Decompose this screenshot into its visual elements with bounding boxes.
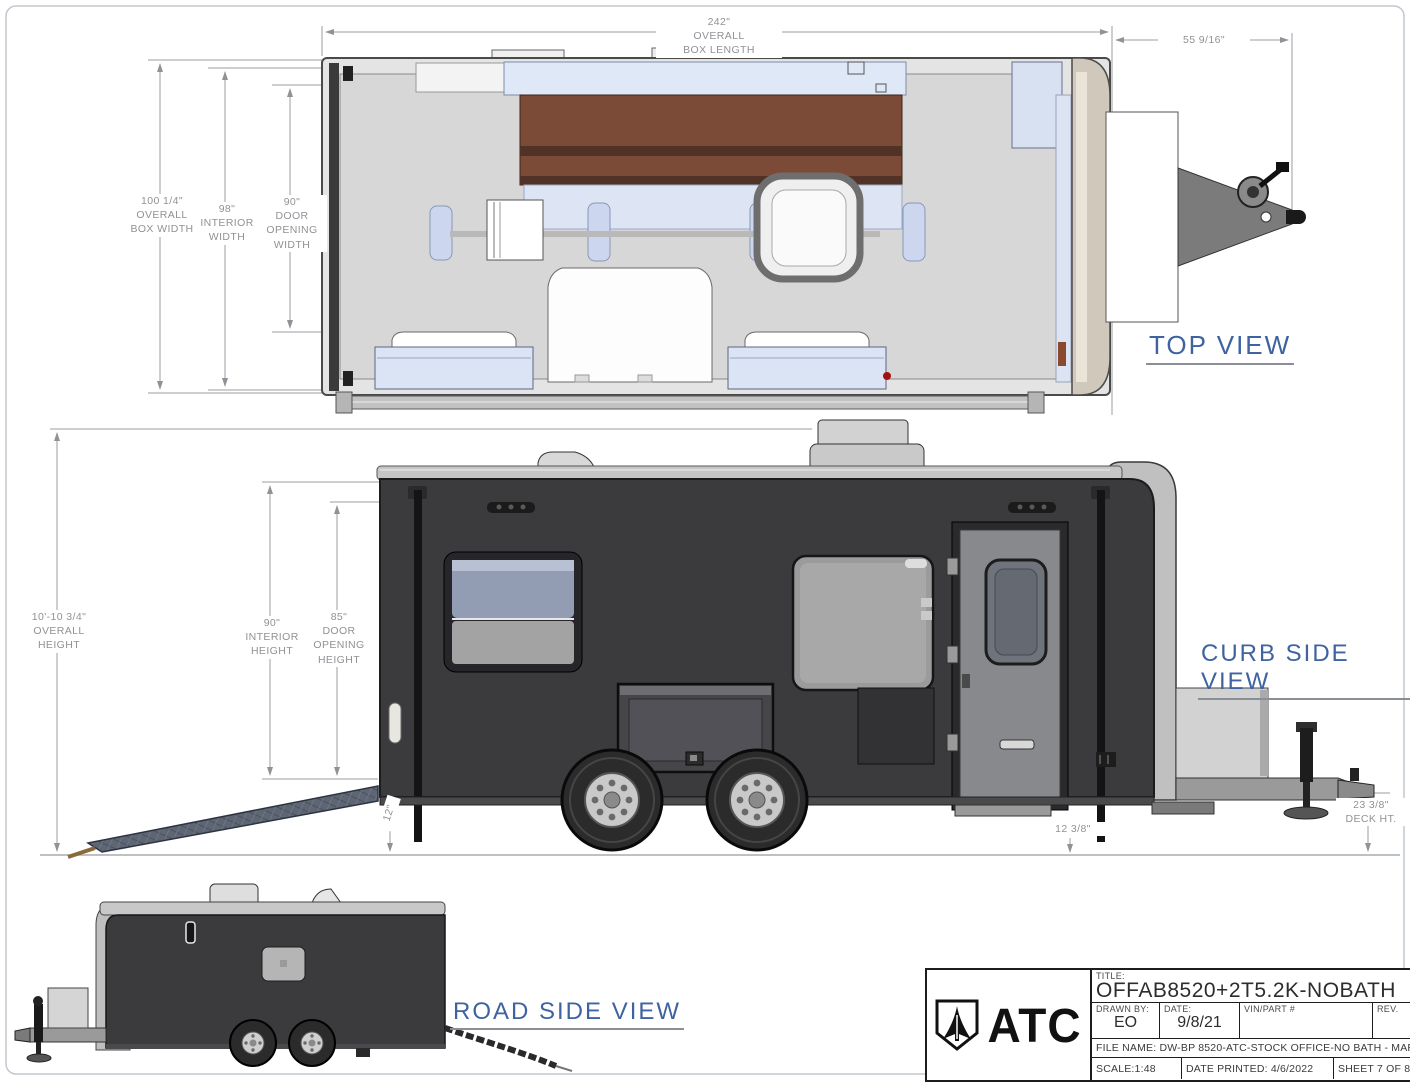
power-inlet [1096,752,1116,767]
awning-arm [1097,490,1105,842]
hinge-detail [343,66,353,81]
dim-interior-height: 90" INTERIOR HEIGHT [238,616,306,659]
atc-shield-icon [935,999,979,1051]
drawing-sheet: TOP VIEW CURB SIDE VIEW ROAD SIDE VIEW 2… [0,0,1410,1080]
ramp-tip [556,1066,572,1071]
title-row: TITLE: OFFAB8520+2T5.2K-NOBATH [1092,970,1410,1003]
title-block: ATC TITLE: OFFAB8520+2T5.2K-NOBATH DRAWN… [925,968,1410,1082]
frame-step [1152,802,1214,814]
wall-vent-slot [186,922,195,943]
wall-window-plan [903,203,925,261]
scale-row: SCALE:1:48 DATE PRINTED: 4/6/2022 SHEET … [1092,1058,1410,1079]
wheel [289,1020,335,1066]
window-glass-lower [452,621,574,664]
wheel [562,750,662,850]
sofa-top-view [520,95,902,185]
door-handle [1000,740,1034,749]
rear-ramp [445,1028,556,1066]
manufacturer-logo: ATC [927,970,1092,1080]
wood-trim-detail [1058,342,1066,366]
scale-value: SCALE:1:48 [1092,1058,1182,1079]
date-label: DATE: [1164,1004,1235,1014]
desk-foot [575,375,589,382]
dim-door-opening-width: 90" DOOR OPENING WIDTH [257,195,327,252]
roof-rail [100,902,445,915]
sheet-number: SHEET 7 OF 8 [1334,1058,1410,1079]
door-hinge [947,646,958,663]
door-lock [962,674,970,688]
tongue-box [48,988,88,1028]
door-window-glass [995,569,1037,655]
jack-foot [27,1054,51,1062]
drawn-by-label: DRAWN BY: [1096,1004,1155,1014]
date-value: 9/8/21 [1164,1014,1235,1032]
coupler-latch [1350,768,1359,781]
wall-window-plan [430,206,452,260]
window-vent-notch [905,559,927,568]
desk-foot [638,375,652,382]
dim-tongue-length: 55 9/16" [1158,33,1250,47]
tongue-box-plan [1106,112,1178,322]
door-hinge [947,558,958,575]
bench-seat [375,347,533,389]
vin-part-cell: VIN/PART # [1240,1003,1373,1038]
date-printed: DATE PRINTED: 4/6/2022 [1182,1058,1334,1079]
coupler-ball-socket [1292,210,1306,224]
curb-side-view-label: CURB SIDE VIEW [1198,640,1410,700]
rev-cell: REV. [1373,1003,1410,1038]
date-cell: DATE: 9/8/21 [1160,1003,1240,1038]
dim-door-opening-height: 85" DOOR OPENING HEIGHT [304,610,374,667]
side-table [487,200,543,260]
info-row: DRAWN BY: EO DATE: 9/8/21 VIN/PART # REV… [1092,1003,1410,1039]
wheel [230,1020,276,1066]
dim-overall-height: 10'-10 3/4" OVERALL HEIGHT [12,610,106,653]
drawing-canvas [0,0,1410,1080]
latch-button [690,755,697,761]
access-panel [858,688,934,764]
file-name: FILE NAME: DW-BP 8520-ATC-STOCK OFFICE-N… [1092,1041,1410,1055]
hinge-detail [343,371,353,386]
sofa-seam [520,146,902,156]
drawn-by-cell: DRAWN BY: EO [1092,1003,1160,1038]
dim-overall-box-length: 242" OVERALL BOX LENGTH [656,15,782,58]
window-latch [921,598,932,607]
rear-ramp [88,786,378,852]
tongue-box [1176,688,1268,778]
cap-highlight [1076,72,1087,382]
window-latch [921,611,932,620]
awning-bracket [336,392,352,413]
drawn-by-value: EO [1096,1014,1155,1032]
stabilizer-jack [356,1048,370,1057]
file-name-row: FILE NAME: DW-BP 8520-ATC-STOCK OFFICE-N… [1092,1039,1410,1058]
red-detail-marker [883,372,891,380]
window-glass [800,563,926,683]
jack-handle [33,996,43,1006]
window-shade-top [452,560,574,571]
road-side-view-label: ROAD SIDE VIEW [450,998,684,1030]
rear-ramp-door-edge [329,63,339,391]
dim-deck-height: 23 3/8" DECK HT. [1336,798,1406,826]
front-wall-strip [1056,95,1071,382]
entry-step [955,805,1051,816]
hitch-coupler [1338,780,1374,799]
front-cabinet [1012,62,1062,148]
vin-part-label: VIN/PART # [1244,1004,1368,1014]
jack-hub [1247,186,1259,198]
logo-text: ATC [987,997,1081,1054]
clearance-light [389,703,401,743]
roof-rail [377,466,1122,480]
roof-vent-cover [312,889,341,903]
tongue-box-shade [1260,690,1268,776]
a-frame-tongue-plan [1178,168,1292,266]
hitch-coupler [15,1028,30,1042]
panel-latch [280,960,287,967]
door-hinge [947,734,958,751]
safety-chain-hole [1261,212,1271,222]
title-block-fields: TITLE: OFFAB8520+2T5.2K-NOBATH DRAWN BY:… [1092,970,1410,1080]
rev-label: REV. [1377,1004,1407,1014]
jack-foot [1284,807,1328,819]
tongue-jack [1300,728,1313,782]
awning-bracket [1028,392,1044,413]
jack-handle [1276,162,1289,172]
slide-strip [504,62,906,95]
drawing-title: OFFAB8520+2T5.2K-NOBATH [1096,979,1407,1003]
road-side-view-drawing [15,884,572,1071]
awning-arm [414,490,422,842]
a-frame-tongue [1176,778,1362,800]
dim-step-clearance: 12 3/8" [1040,822,1106,836]
top-view-label: TOP VIEW [1146,330,1294,365]
bench-seat [728,347,886,389]
dim-interior-width: 98" INTERIOR WIDTH [194,202,260,245]
hatch-hinge-lip [620,686,771,695]
chair-cushion [772,190,846,266]
wheel [707,750,807,850]
desk [548,268,712,382]
tongue-jack [34,1004,43,1042]
jack-stem [1303,782,1310,810]
cabinet-top [416,63,504,92]
